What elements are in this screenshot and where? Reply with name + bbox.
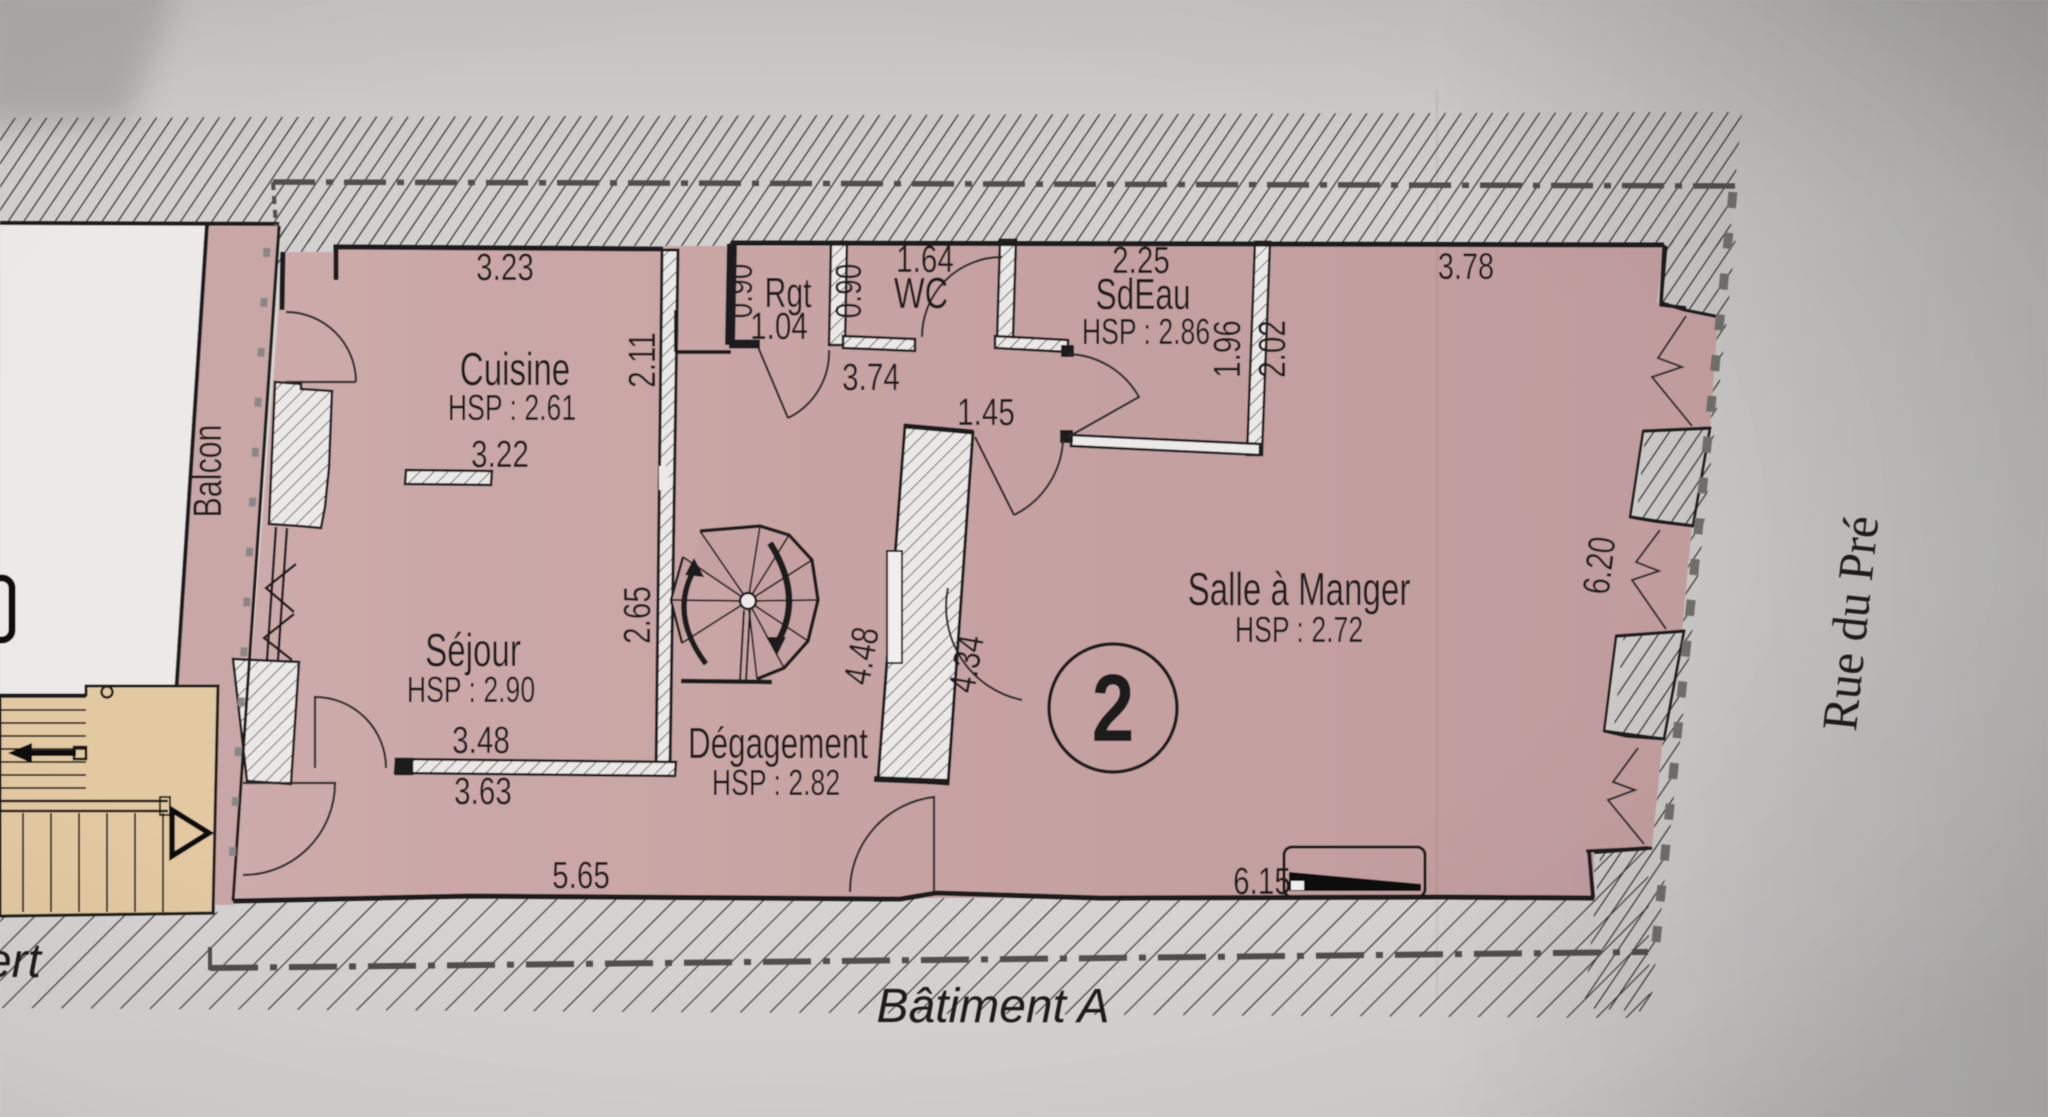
svg-text:3.78: 3.78: [1438, 247, 1494, 288]
svg-text:Dégagement: Dégagement: [688, 719, 868, 768]
svg-text:Bâtiment A: Bâtiment A: [877, 980, 1110, 1033]
svg-text:WC: WC: [894, 269, 948, 318]
svg-text:1.04: 1.04: [750, 306, 808, 348]
svg-text:6.15: 6.15: [1233, 861, 1291, 903]
svg-text:2.65: 2.65: [617, 586, 659, 644]
svg-text:3.63: 3.63: [454, 771, 512, 813]
svg-text:HSP : 2.61: HSP : 2.61: [448, 387, 576, 428]
svg-text:5.65: 5.65: [552, 855, 610, 897]
svg-text:Balcon: Balcon: [185, 425, 230, 518]
svg-text:0.90: 0.90: [829, 264, 869, 319]
svg-text:1.96: 1.96: [1207, 320, 1249, 378]
svg-text:3.48: 3.48: [452, 720, 510, 762]
svg-text:HSP : 2.86: HSP : 2.86: [1082, 311, 1210, 352]
svg-text:2: 2: [1092, 655, 1135, 762]
svg-text:3.23: 3.23: [476, 247, 534, 289]
svg-text:2.11: 2.11: [622, 332, 664, 387]
svg-text:ert: ert: [0, 935, 43, 988]
svg-text:1.45: 1.45: [957, 392, 1015, 434]
svg-text:2.02: 2.02: [1252, 320, 1294, 378]
svg-text:3.74: 3.74: [842, 357, 900, 399]
svg-text:HSP : 2.82: HSP : 2.82: [712, 762, 840, 803]
svg-text:HSP : 2.90: HSP : 2.90: [407, 669, 535, 710]
svg-text:Salle à Manger: Salle à Manger: [1188, 565, 1411, 615]
svg-text:HSP : 2.72: HSP : 2.72: [1235, 609, 1363, 650]
svg-text:3.22: 3.22: [471, 434, 529, 476]
svg-text:6.20: 6.20: [1575, 534, 1624, 596]
